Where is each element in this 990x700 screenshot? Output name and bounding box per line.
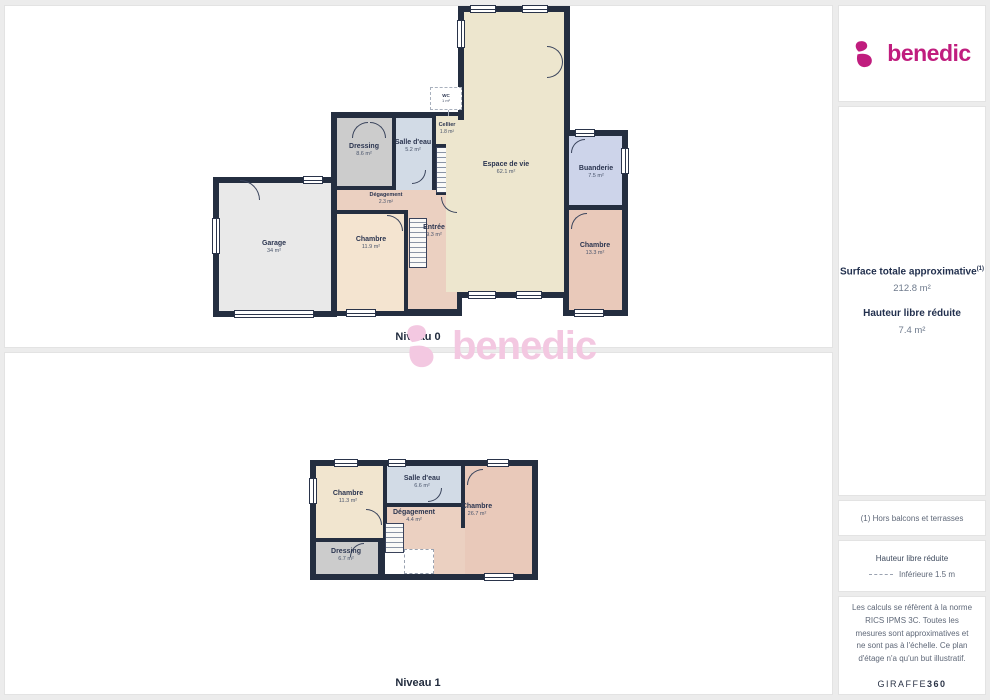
room-salle-eau-label: Salle d'eau5.2 m² [395, 138, 431, 154]
surface-info-panel: Surface totale approximative(1) 212.8 m²… [838, 106, 986, 496]
room-buanderie-label: Buanderie7.5 m² [579, 164, 613, 180]
room-degagement-label: Dégagement2.3 m² [369, 192, 402, 206]
legal-panel: Les calculs se réfèrent à la norme RICS … [838, 596, 986, 695]
window-icon [574, 309, 604, 317]
room-salle-eau-label: Salle d'eau6.6 m² [404, 474, 440, 490]
room-espace-de-vie-label: Espace de vie62.1 m² [483, 160, 529, 176]
room-espace-de-vie [446, 120, 564, 292]
stairs-icon [385, 523, 404, 553]
window-icon [487, 459, 509, 467]
window-icon [346, 309, 376, 317]
giraffe360-credit: GIRAFFE360 [877, 679, 946, 689]
watermark-text: benedic [452, 324, 596, 369]
reduced-height-value: 7.4 m² [899, 325, 926, 336]
window-icon [212, 218, 220, 254]
window-icon [516, 291, 542, 299]
dashed-line-icon [869, 574, 893, 575]
room-wc-label: WC 1 m² [430, 87, 462, 110]
window-icon [468, 291, 496, 299]
garage-door-icon [234, 310, 314, 318]
legend-panel: Hauteur libre réduite Inférieure 1.5 m [838, 540, 986, 592]
room-degagement-label: Dégagement4.4 m² [393, 508, 435, 524]
room-salle-eau [396, 118, 432, 196]
footnote-text: (1) Hors balcons et terrasses [861, 514, 964, 523]
window-icon [522, 5, 548, 13]
reduced-height-zone [404, 549, 434, 574]
surface-total-value: 212.8 m² [893, 283, 931, 294]
footnote-panel: (1) Hors balcons et terrasses [838, 500, 986, 536]
window-icon [457, 20, 465, 48]
surface-total-title: Surface totale approximative(1) [840, 266, 984, 277]
room-chambre-2-label: Chambre26.7 m² [462, 502, 492, 518]
legend-title: Hauteur libre réduite [876, 554, 948, 563]
room-cellier-label: Cellier1.8 m² [439, 122, 456, 136]
window-icon [334, 459, 358, 467]
benedic-heart-icon [403, 322, 445, 370]
level-title-niveau-1: Niveau 1 [395, 677, 440, 689]
brand-name: benedic [887, 40, 970, 67]
reduced-height-title: Hauteur libre réduite [863, 308, 961, 319]
window-icon [309, 478, 317, 504]
window-icon [621, 148, 629, 174]
window-icon [388, 459, 406, 467]
room-chambre-1-label: Chambre11.3 m² [333, 489, 363, 505]
room-chambre-2-label: Chambre13.3 m² [580, 241, 610, 257]
floorplan-page: WC 1 m² Garage34 m² Dressing8.6 m² Salle… [0, 0, 990, 700]
room-garage-label: Garage34 m² [262, 239, 286, 255]
room-entree-label: Entrée9.3 m² [423, 223, 445, 239]
window-icon [575, 129, 595, 137]
window-icon [470, 5, 496, 13]
room-dressing-label: Dressing8.6 m² [349, 142, 379, 158]
benedic-watermark: benedic [403, 322, 596, 370]
benedic-heart-icon [853, 39, 879, 69]
brand-logo: benedic [838, 5, 986, 102]
legend-item-label: Inférieure 1.5 m [899, 570, 955, 579]
legal-text: Les calculs se réfèrent à la norme RICS … [851, 602, 973, 666]
window-icon [303, 176, 323, 184]
window-icon [484, 573, 514, 581]
room-chambre-1-label: Chambre11.9 m² [356, 235, 386, 251]
stairwell-void [385, 553, 404, 574]
legend-item: Inférieure 1.5 m [869, 570, 955, 579]
room-dressing-label: Dressing6.7 m² [331, 547, 361, 563]
